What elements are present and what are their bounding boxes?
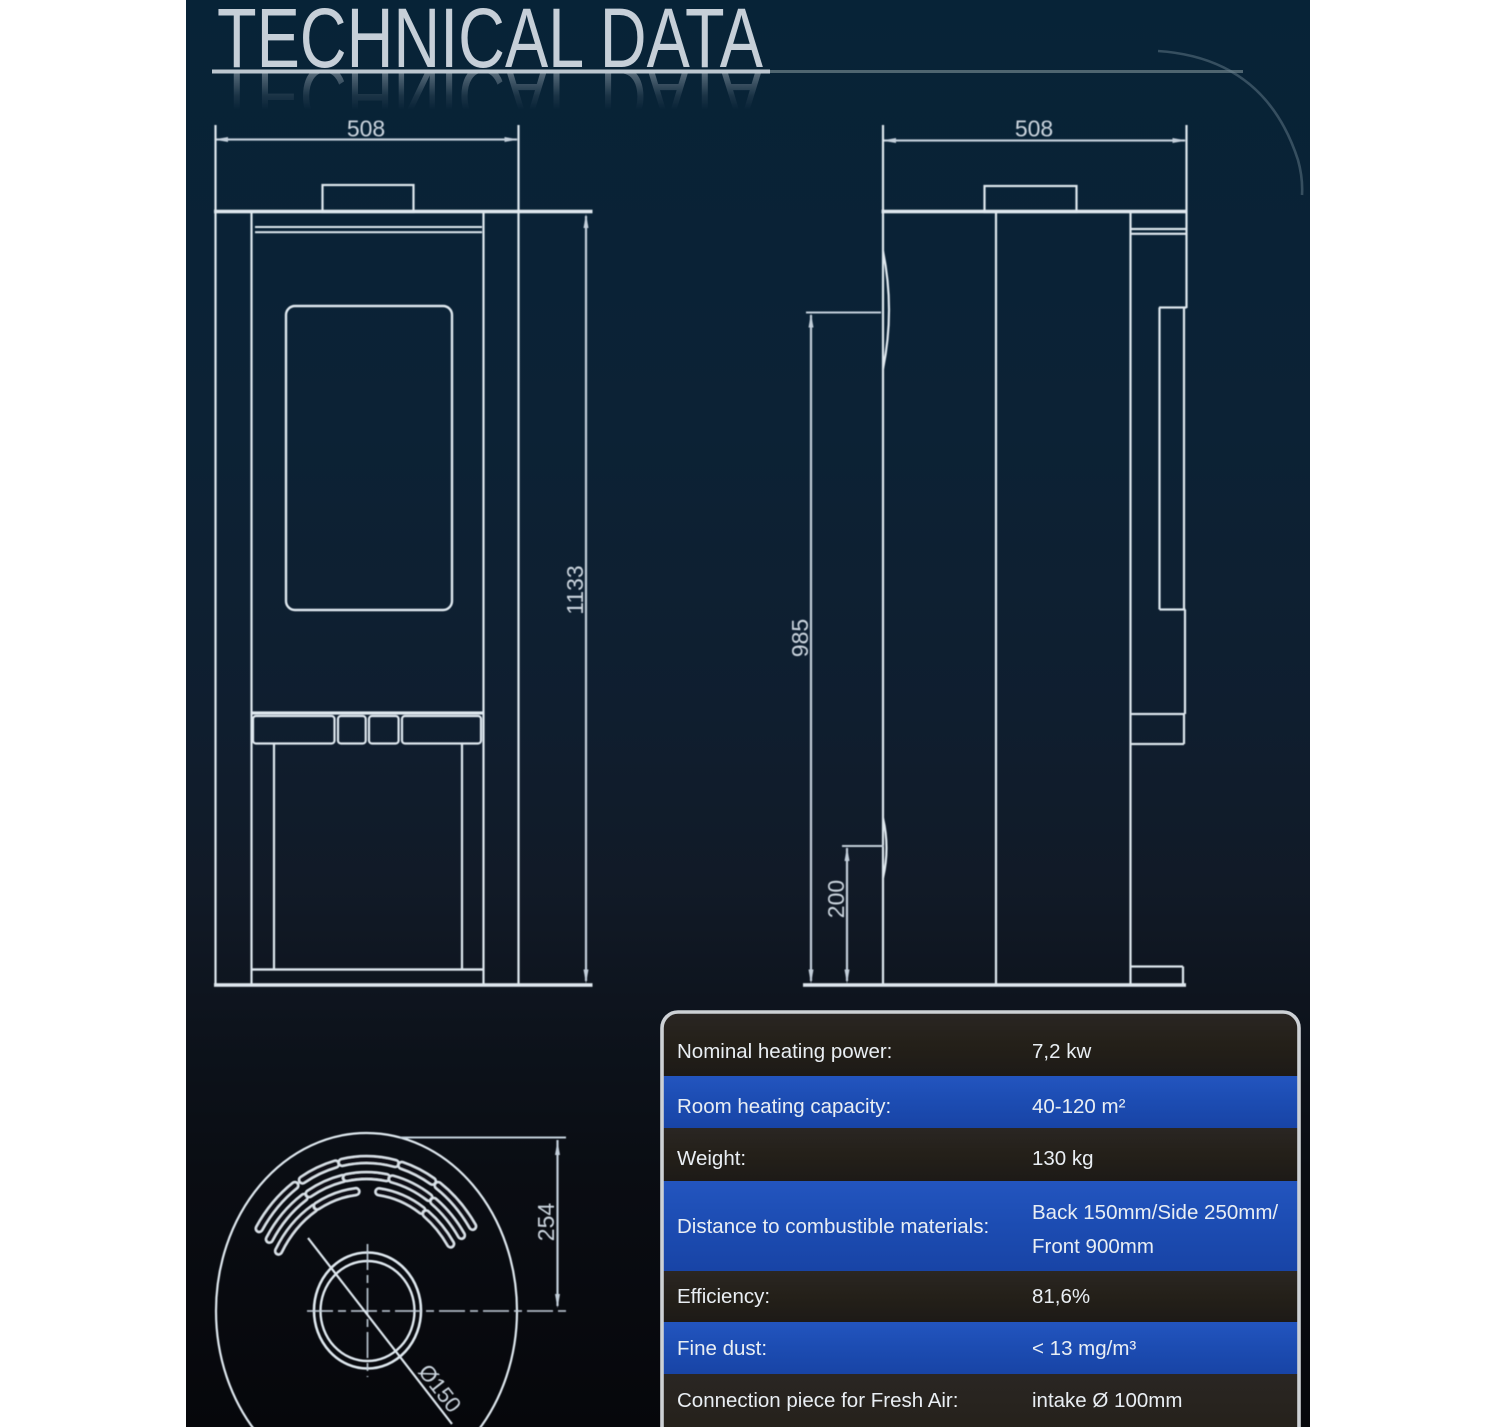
svg-text:130 kg: 130 kg bbox=[1032, 1147, 1094, 1170]
svg-text:Fine dust:: Fine dust: bbox=[677, 1337, 767, 1360]
svg-text:200: 200 bbox=[823, 880, 849, 918]
svg-text:Front 900mm: Front 900mm bbox=[1032, 1235, 1154, 1258]
svg-text:7,2 kw: 7,2 kw bbox=[1032, 1040, 1091, 1063]
svg-text:Weight:: Weight: bbox=[677, 1147, 746, 1170]
svg-text:Distance to combustible materi: Distance to combustible materials: bbox=[677, 1215, 989, 1238]
svg-text:508: 508 bbox=[347, 116, 385, 142]
svg-text:TECHNICAL DATA: TECHNICAL DATA bbox=[217, 49, 763, 143]
svg-text:985: 985 bbox=[787, 619, 813, 657]
svg-text:Nominal heating power:: Nominal heating power: bbox=[677, 1040, 892, 1063]
svg-text:1133: 1133 bbox=[562, 565, 588, 614]
svg-text:40-120 m²: 40-120 m² bbox=[1032, 1095, 1126, 1118]
svg-text:254: 254 bbox=[533, 1203, 559, 1242]
svg-text:intake Ø 100mm: intake Ø 100mm bbox=[1032, 1389, 1182, 1412]
svg-text:Back 150mm/Side 250mm/: Back 150mm/Side 250mm/ bbox=[1032, 1201, 1278, 1224]
svg-text:Room heating capacity:: Room heating capacity: bbox=[677, 1095, 891, 1118]
svg-text:508: 508 bbox=[1015, 116, 1053, 142]
svg-text:81,6%: 81,6% bbox=[1032, 1285, 1090, 1308]
svg-text:Efficiency:: Efficiency: bbox=[677, 1285, 770, 1308]
svg-text:< 13 mg/m³: < 13 mg/m³ bbox=[1032, 1337, 1136, 1360]
svg-text:Connection piece for Fresh Air: Connection piece for Fresh Air: bbox=[677, 1389, 958, 1412]
